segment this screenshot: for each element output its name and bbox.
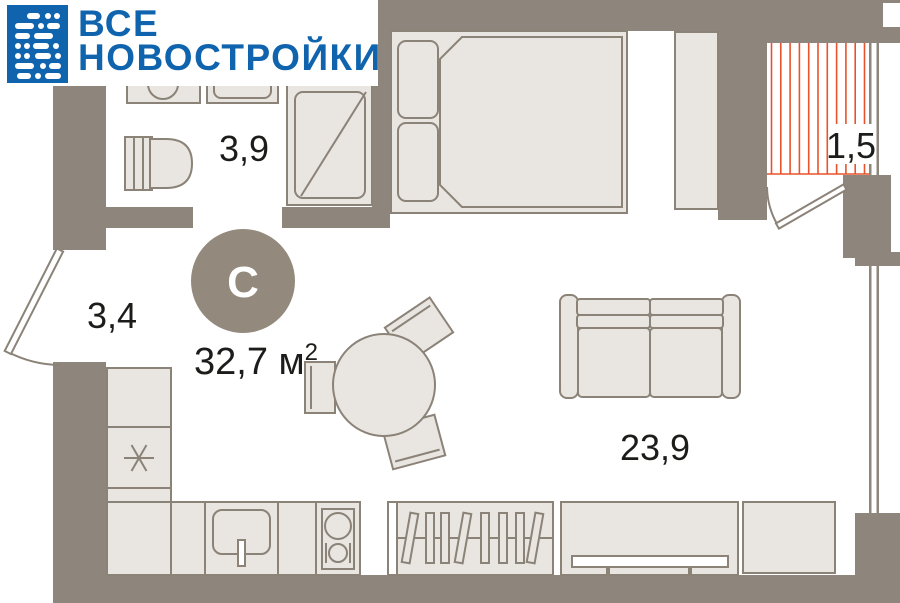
floorplan: 3,9 3,4 1,5 23,9 С 32,7 м2 bbox=[0, 0, 900, 603]
wall-bath-bottom-left bbox=[106, 207, 193, 228]
logo-mark-icon bbox=[7, 5, 68, 83]
wall-bottom bbox=[53, 575, 900, 603]
wall-left-upper bbox=[53, 76, 106, 250]
balcony-door bbox=[767, 184, 847, 228]
kitchen-sink bbox=[205, 502, 278, 575]
logo[interactable]: ВСЕ НОВОСТРОЙКИ bbox=[0, 0, 378, 86]
wall-balcony-stub bbox=[718, 31, 767, 220]
living-room-area-label: 23,9 bbox=[620, 427, 690, 468]
wall-left-lower bbox=[53, 362, 106, 577]
logo-line1: ВСЕ bbox=[78, 7, 382, 41]
window-right bbox=[869, 43, 879, 515]
floorplan-card: 3,9 3,4 1,5 23,9 С 32,7 м2 ВСЕ bbox=[0, 0, 900, 603]
kitchen-column bbox=[107, 368, 171, 575]
bed bbox=[391, 31, 627, 213]
balcony-area-label: 1,5 bbox=[826, 125, 876, 166]
entrance-door bbox=[5, 248, 63, 365]
wall-balcony-side-block bbox=[843, 175, 891, 258]
wall-top-notch bbox=[883, 3, 900, 27]
studio-badge: С bbox=[191, 229, 295, 333]
chair-left bbox=[305, 362, 335, 413]
bathroom-area-label: 3,9 bbox=[219, 128, 269, 169]
logo-text: ВСЕ НОВОСТРОЙКИ bbox=[78, 7, 382, 75]
wall-top bbox=[372, 0, 900, 31]
total-area-label: 32,7 м2 bbox=[194, 339, 318, 383]
stove bbox=[316, 502, 360, 575]
dining-set bbox=[305, 297, 453, 469]
closet-hangers bbox=[397, 502, 553, 575]
cabinet-right bbox=[743, 502, 835, 573]
studio-badge-letter: С bbox=[227, 258, 259, 307]
wall-balcony-top bbox=[767, 31, 900, 43]
sofa bbox=[560, 295, 740, 398]
tv-stand bbox=[561, 502, 738, 575]
shower bbox=[287, 85, 372, 205]
hallway-area-label: 3,4 bbox=[87, 295, 137, 336]
wardrobe-tall bbox=[675, 32, 718, 209]
logo-line2: НОВОСТРОЙКИ bbox=[78, 41, 382, 75]
wall-bottom-right-block bbox=[855, 513, 900, 577]
wall-balcony-side-step bbox=[855, 252, 900, 266]
dining-table bbox=[333, 334, 435, 436]
toilet bbox=[125, 137, 192, 190]
kitchen-counter-row bbox=[171, 502, 835, 575]
counter-divider bbox=[388, 502, 397, 575]
